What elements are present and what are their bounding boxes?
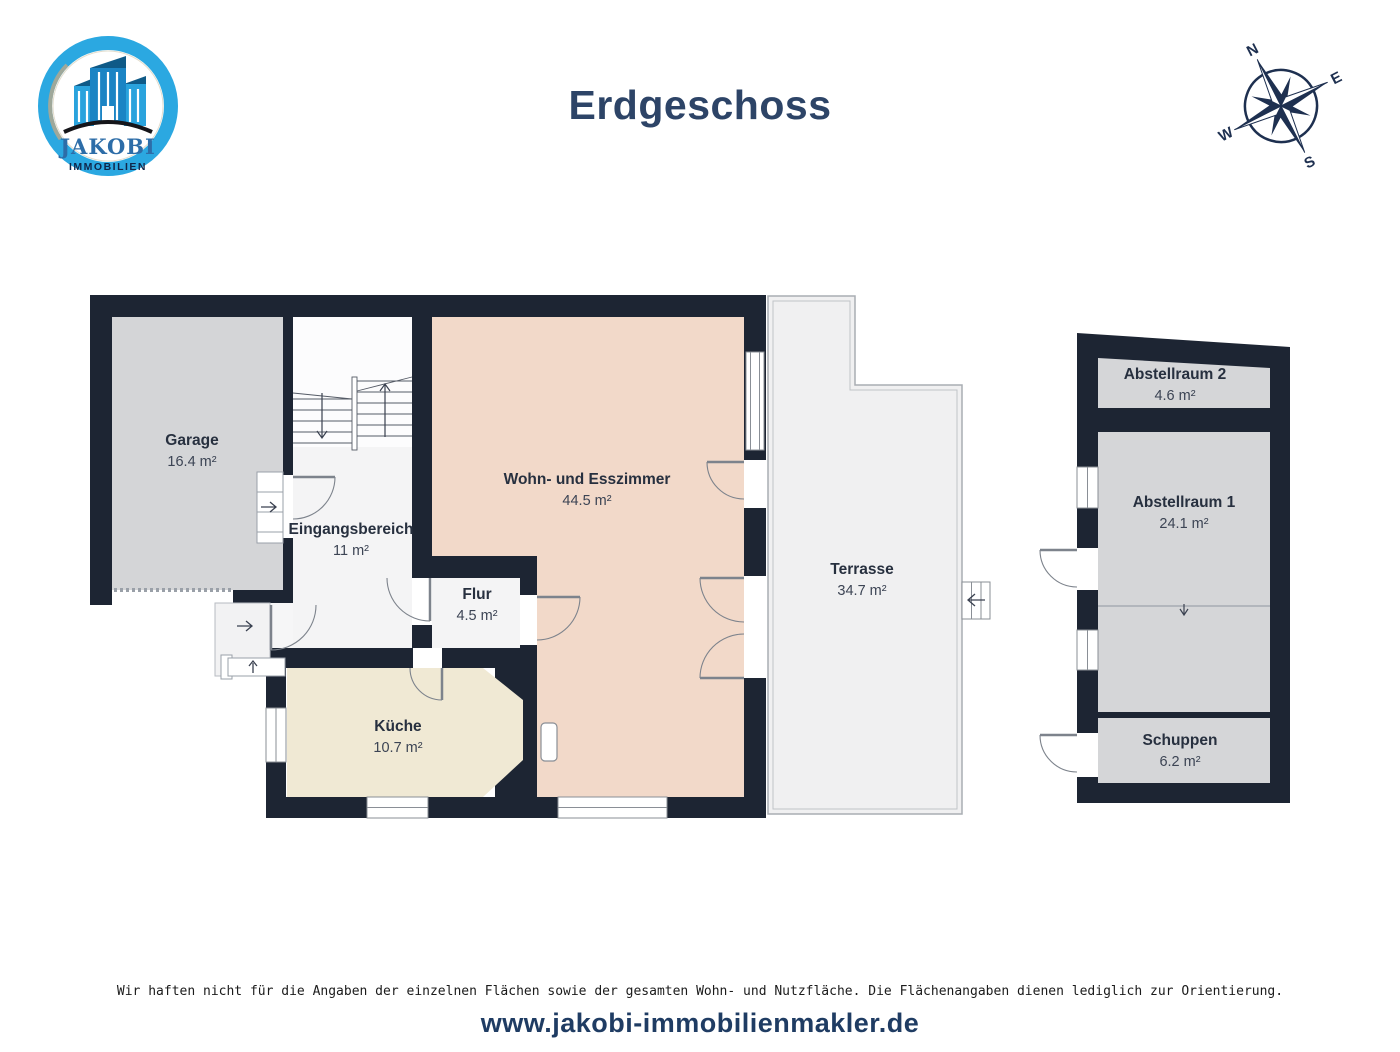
room-label-flur: Flur 4.5 m²	[456, 584, 497, 626]
room-label-abstellraum-1: Abstellraum 1 24.1 m²	[1133, 492, 1236, 534]
room-label-terrasse: Terrasse 34.7 m²	[830, 559, 893, 601]
room-label-eingangsbereich: Eingangsbereich 11 m²	[289, 519, 414, 561]
floor-plan-page: Erdgeschoss JAKOBI	[0, 0, 1400, 1052]
room-label-schuppen: Schuppen 6.2 m²	[1143, 730, 1218, 772]
room-label-kueche: Küche 10.7 m²	[373, 716, 422, 758]
footer-website-url: www.jakobi-immobilienmakler.de	[0, 1008, 1400, 1039]
room-label-abstellraum-2: Abstellraum 2 4.6 m²	[1124, 364, 1227, 406]
room-label-wohn-esszimmer: Wohn- und Esszimmer 44.5 m²	[504, 469, 671, 511]
footer-disclaimer: Wir haften nicht für die Angaben der ein…	[0, 984, 1400, 999]
room-labels: Garage 16.4 m² Eingangsbereich 11 m² Woh…	[0, 0, 1400, 1052]
room-label-garage: Garage 16.4 m²	[165, 430, 218, 472]
